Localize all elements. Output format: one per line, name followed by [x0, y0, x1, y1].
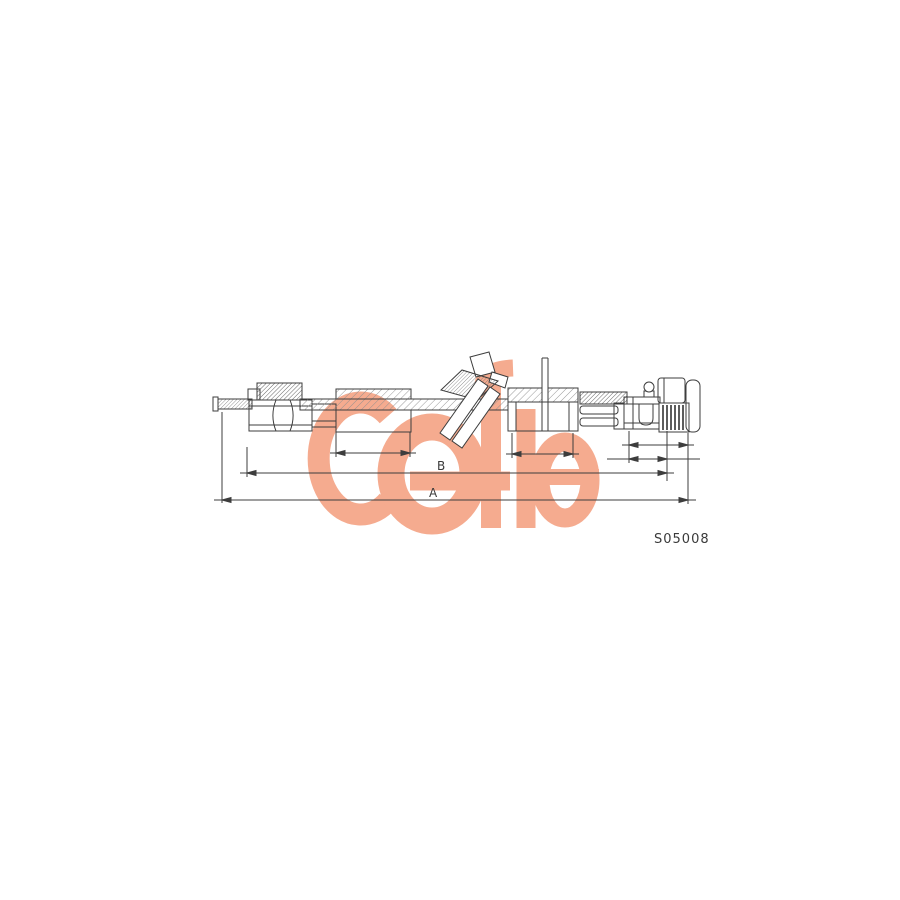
dimension-endfitting-1: [622, 443, 694, 448]
part-number: S05008: [654, 532, 710, 547]
dim-label-a: A: [429, 486, 438, 500]
speedometer-cable-drawing: B A S05008: [0, 0, 900, 900]
cable-inner-tip-left: [213, 397, 252, 411]
dim-label-b: B: [437, 459, 445, 473]
bulkhead-rod: [542, 358, 548, 431]
connector-flag: [658, 378, 685, 403]
logo-letter-c: [319, 403, 388, 515]
knurled-nut: [659, 403, 689, 432]
dimension-line-b: B: [240, 459, 674, 476]
dimension-endfitting-2: [607, 457, 700, 462]
right-fitting: [580, 378, 700, 432]
vent-ball: [644, 382, 654, 392]
product-drawing-canvas: B A S05008: [0, 0, 900, 900]
